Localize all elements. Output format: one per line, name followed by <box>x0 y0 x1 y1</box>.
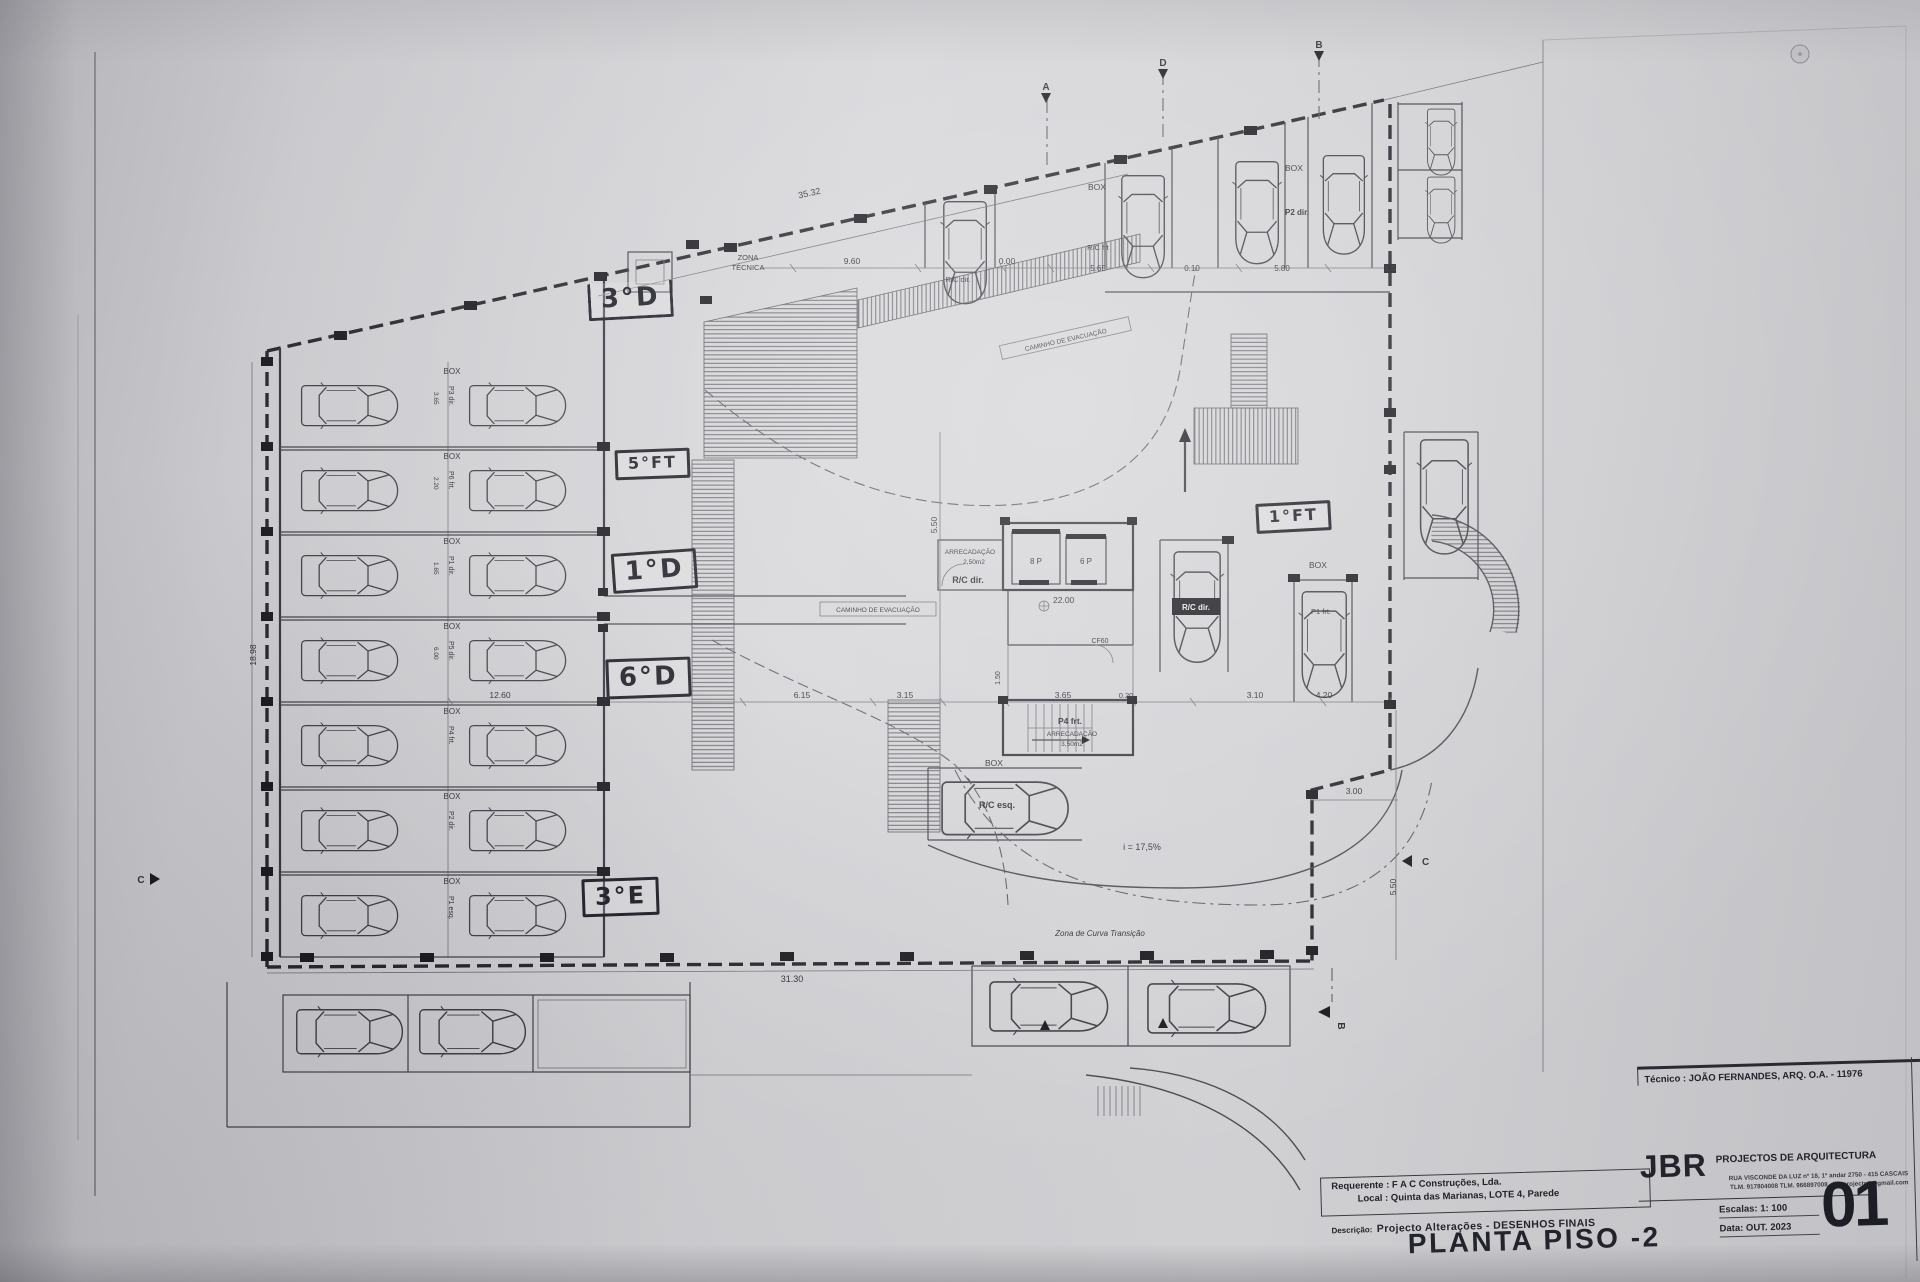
car-icon <box>470 722 566 768</box>
drive-paths <box>690 54 1478 1190</box>
descricao-label: Descrição: <box>1331 1225 1372 1235</box>
box-label: BOX <box>444 367 462 376</box>
car-icon <box>302 467 398 513</box>
car-icon <box>302 892 398 938</box>
elevator-capacity-label: 6 P <box>1080 557 1092 566</box>
outside-top-right-stalls <box>1398 102 1478 580</box>
ramp-hatch <box>1194 408 1298 464</box>
ramp-direction-arrow <box>1179 428 1191 442</box>
section-letter: B <box>1315 40 1322 51</box>
bottom-center-stalls <box>972 966 1290 1116</box>
plan-boundary <box>267 100 1390 967</box>
dim-text: 12.60 <box>489 690 511 700</box>
car-icon <box>1425 109 1457 175</box>
car-icon <box>470 467 566 513</box>
stall-dim: 3.65 <box>432 392 439 405</box>
fire-door-label: CF60 <box>1091 638 1108 645</box>
ramp-hatch <box>692 460 734 770</box>
dim-text: 1.50 <box>995 671 1002 685</box>
elevator-door <box>1071 580 1097 585</box>
car-icon <box>1148 980 1266 1037</box>
dim-text: 3.15 <box>897 690 914 700</box>
box-label: BOX <box>444 792 462 801</box>
dim-text: 18.98 <box>248 644 258 666</box>
handwritten-unit-label-5ft: 5°FT <box>614 448 690 481</box>
car-icon <box>470 552 566 598</box>
stall-dim: 1.65 <box>432 562 439 575</box>
stall-owner-label: R/C frt <box>1087 243 1110 252</box>
section-letter: C <box>137 875 144 886</box>
crosswalk-hatch <box>1098 1086 1140 1116</box>
firm-initials: JBR <box>1639 1147 1707 1186</box>
arrecadacao-area: 3,50m2 <box>1061 741 1083 748</box>
caminho-evacuacao-label: CAMINHO DE EVACUAÇÃO <box>1024 326 1108 353</box>
dim-text: 31.30 <box>781 974 804 984</box>
dim-text: 5.80 <box>1274 264 1290 273</box>
ramp-hatches <box>692 234 1519 832</box>
car-icon <box>990 978 1108 1035</box>
dim-text: 9.60 <box>844 256 861 266</box>
tecnico-row: Técnico : JOÃO FERNANDES, ARQ. O.A. - 11… <box>1637 1059 1920 1086</box>
car-icon <box>1232 162 1281 264</box>
stall-dim: 6.00 <box>432 647 439 660</box>
dim-text: 1.5 <box>1384 264 1396 273</box>
dim-text: 3.10 <box>1247 690 1264 700</box>
ramp-slope-label: i = 17,5% <box>1123 842 1161 852</box>
ramp-hatch <box>888 700 940 832</box>
car-icon <box>1425 177 1457 243</box>
dim-text: 0.20 <box>1119 691 1134 700</box>
box-label: BOX <box>1285 163 1303 173</box>
car-icon <box>470 892 566 938</box>
handwritten-unit-label-1ft: 1°FT <box>1255 500 1331 534</box>
stall-owner-label: R/C dir. <box>945 275 970 284</box>
stall-owner-label: P5 dir. <box>447 641 454 661</box>
drawing-title: PLANTA PISO -2 <box>1407 1221 1661 1260</box>
box-label: BOX <box>444 877 462 886</box>
box-label: BOX <box>444 622 462 631</box>
dim-text: 35.32 <box>797 186 821 201</box>
store-owner-label: P4 frt. <box>1058 716 1082 726</box>
car-icon <box>420 1006 526 1057</box>
stall-owner-label: P2 dir. <box>1285 208 1309 217</box>
zona-tecnica-label: ZONA <box>738 253 759 262</box>
car-icon <box>302 722 398 768</box>
car-icon <box>470 637 566 683</box>
dim-text: 5.65 <box>1090 264 1106 273</box>
car-icon <box>302 807 398 853</box>
arrecadacao-label: ARRECADAÇÃO <box>1047 729 1097 738</box>
dim-text: 3.00 <box>1346 786 1363 796</box>
annotations: ZONA TÉCNICA 35.32 CAMINHO DE EVACUAÇÃO … <box>248 163 1398 984</box>
car-icon <box>1320 156 1368 254</box>
ramp-hatch <box>1231 334 1267 408</box>
photographed-drawing-sheet: BOX P3 dir. 3.65 BOX P6 frt. 2.20 BOX P1… <box>0 0 1920 1282</box>
dim-text: 4.20 <box>1316 690 1333 700</box>
curve-transition-label: Zona de Curva Transição <box>1054 929 1145 938</box>
arrecadacao-area: 2,50m2 <box>963 559 985 566</box>
box-label: BOX <box>444 537 462 546</box>
stall-owner-label: P1 dir. <box>447 556 454 576</box>
stall-owner-badge: R/C dir. <box>1182 603 1210 612</box>
title-block: Técnico : JOÃO FERNANDES, ARQ. O.A. - 11… <box>1305 1053 1920 1282</box>
ramp-hatch <box>704 288 857 458</box>
bottom-left-stalls <box>227 982 690 1127</box>
stall-owner-label: P6 frt. <box>447 471 454 490</box>
handwritten-unit-label-3d: 3°D <box>587 280 674 321</box>
arrecadacao-label: ARRECADAÇÃO <box>945 547 995 556</box>
car-icon <box>302 552 398 598</box>
sheet-number: 01 <box>1820 1166 1887 1242</box>
level-mark-text: 22.00 <box>1053 595 1075 605</box>
car-icon <box>470 807 566 853</box>
firm-name: PROJECTOS DE ARQUITECTURA <box>1716 1150 1877 1165</box>
date-row: Data: OUT. 2023 <box>1719 1221 1819 1238</box>
dimension-lines <box>252 174 1398 973</box>
car-icon <box>302 637 398 683</box>
zona-tecnica-label: TÉCNICA <box>732 263 765 272</box>
box-label: BOX <box>1088 182 1106 192</box>
dim-text: 6.15 <box>794 690 811 700</box>
stall-owner-label: P1 frt. <box>1311 607 1331 616</box>
box-label: BOX <box>444 452 462 461</box>
stall-owner-label: P3 dir. <box>447 386 454 406</box>
stall-owner-label: P1 esq. <box>447 896 454 920</box>
handwritten-unit-label-6d: 6°D <box>605 657 691 700</box>
box-label: BOX <box>444 707 462 716</box>
elevator-door <box>1019 580 1049 585</box>
box-label: BOX <box>1309 560 1327 570</box>
scale-row: Escalas: 1: 100 <box>1719 1202 1819 1219</box>
section-letter: D <box>1159 58 1166 69</box>
handwritten-unit-label-3e: 3°E <box>581 877 659 918</box>
section-letter: C <box>1422 857 1429 868</box>
dim-text: 0.00 <box>999 256 1016 266</box>
dim-text: 0.10 <box>1184 264 1200 273</box>
stall-owner-label: R/C esq. <box>979 800 1015 810</box>
box-label: BOX <box>985 758 1003 768</box>
car-icon <box>302 382 398 428</box>
car-icon <box>297 1006 403 1057</box>
section-letter: A <box>1042 82 1049 93</box>
stall-dim: 2.20 <box>432 477 439 490</box>
left-parking-block: BOX P3 dir. 3.65 BOX P6 frt. 2.20 BOX P1… <box>280 275 604 957</box>
requerente-box: Requerente : F A C Construções, Lda. Loc… <box>1320 1168 1651 1216</box>
elevator-capacity-label: 8 P <box>1030 557 1042 566</box>
dim-text: 5.50 <box>929 516 939 533</box>
handwritten-unit-label-1d: 1°D <box>611 548 698 594</box>
stall-owner-label: P4 frt. <box>447 726 454 745</box>
structural-columns <box>261 126 1396 962</box>
section-letter: B <box>1335 1022 1346 1029</box>
store-owner-label: R/C dir. <box>952 575 984 585</box>
dim-text: 5.50 <box>1388 878 1398 895</box>
stall-owner-label: P2 dir. <box>447 811 454 831</box>
door-swing <box>1095 645 1113 663</box>
dim-text: 3.65 <box>1055 690 1072 700</box>
car-icon <box>470 382 566 428</box>
title-block-right-border <box>1911 1057 1918 1261</box>
caminho-evacuacao-label: CAMINHO DE EVACUAÇÃO <box>836 605 920 614</box>
